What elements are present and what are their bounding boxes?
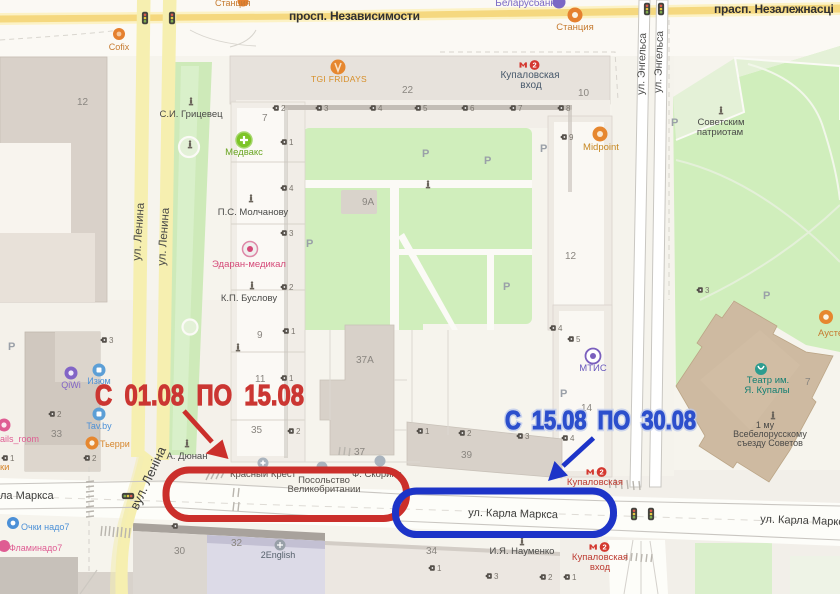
svg-text:P: P	[503, 281, 510, 293]
svg-text:39: 39	[461, 450, 473, 461]
svg-text:33: 33	[51, 429, 63, 440]
svg-text:И.Я. Науменко: И.Я. Науменко	[490, 546, 555, 557]
svg-text:37: 37	[354, 447, 366, 458]
svg-text:35: 35	[251, 425, 263, 436]
svg-text:P: P	[306, 238, 313, 250]
svg-text:ла Маркса: ла Маркса	[0, 490, 55, 502]
svg-text:37А: 37А	[356, 355, 374, 366]
svg-text:А. Дюнан: А. Дюнан	[167, 451, 208, 462]
svg-text:30: 30	[174, 546, 186, 557]
svg-text:Великобритании: Великобритании	[287, 484, 360, 495]
svg-text:7: 7	[518, 104, 523, 113]
svg-text:Я. Купалы: Я. Купалы	[744, 385, 789, 396]
svg-text:ул. Карла Маркса: ул. Карла Маркса	[468, 507, 559, 521]
svg-text:3: 3	[109, 336, 114, 345]
svg-text:TGI FRIDAYS: TGI FRIDAYS	[311, 74, 367, 84]
svg-text:С.И. Грицевец: С.И. Грицевец	[159, 109, 223, 120]
svg-text:4: 4	[378, 104, 383, 113]
svg-text:Купаловская: Купаловская	[567, 477, 623, 488]
svg-text:ул. Энгельса: ул. Энгельса	[652, 30, 666, 93]
svg-text:22: 22	[402, 85, 414, 96]
svg-text:Тьерри: Тьерри	[100, 439, 130, 449]
svg-text:7: 7	[262, 113, 268, 124]
svg-text:3: 3	[289, 229, 294, 238]
svg-text:9: 9	[569, 133, 574, 142]
svg-text:1: 1	[291, 327, 296, 336]
svg-text:2: 2	[289, 283, 294, 292]
svg-text:вход: вход	[590, 562, 611, 573]
svg-text:1: 1	[10, 454, 15, 463]
svg-text:Эдаран-медикал: Эдаран-медикал	[212, 259, 286, 270]
svg-text:3: 3	[705, 286, 710, 295]
svg-text:10: 10	[578, 88, 590, 99]
svg-text:2: 2	[296, 427, 301, 436]
svg-text:Аустерия: Аустерия	[818, 328, 840, 339]
svg-text:P: P	[671, 117, 678, 129]
svg-text:3: 3	[494, 572, 499, 581]
svg-text:12: 12	[77, 97, 89, 108]
svg-text:12: 12	[565, 251, 577, 262]
svg-text:2English: 2English	[261, 550, 296, 560]
svg-text:Tav.by: Tav.by	[86, 421, 112, 431]
svg-text:QiWi: QiWi	[61, 380, 81, 390]
svg-text:P: P	[8, 341, 15, 353]
svg-text:П.С. Молчанову: П.С. Молчанову	[218, 207, 289, 218]
svg-text:Фламинадо7: Фламинадо7	[9, 543, 62, 553]
svg-text:Cofix: Cofix	[109, 42, 130, 52]
svg-text:4: 4	[558, 324, 563, 333]
svg-text:1: 1	[289, 138, 294, 147]
svg-text:9А: 9А	[362, 197, 375, 208]
svg-text:Очки надо7: Очки надо7	[21, 522, 69, 532]
svg-text:С 15.08 ПО 30.08: С 15.08 ПО 30.08	[505, 405, 696, 435]
svg-text:5: 5	[423, 104, 428, 113]
svg-text:4: 4	[289, 184, 294, 193]
svg-text:патриотам: патриотам	[697, 127, 743, 138]
svg-text:С 01.08 ПО 15.08: С 01.08 ПО 15.08	[95, 380, 304, 412]
svg-text:прасп. Незалежнасці: прасп. Незалежнасці	[714, 2, 834, 16]
svg-text:Беларусбанк: Беларусбанк	[495, 0, 555, 9]
svg-text:5: 5	[576, 335, 581, 344]
svg-text:МТИС: МТИС	[579, 363, 607, 374]
svg-text:1: 1	[572, 573, 577, 582]
svg-text:2: 2	[548, 573, 553, 582]
svg-text:просп. Независимости: просп. Независимости	[289, 9, 420, 23]
svg-text:2: 2	[57, 410, 62, 419]
svg-text:2: 2	[467, 429, 472, 438]
svg-text:P: P	[484, 155, 491, 167]
svg-text:ails_room: ails_room	[0, 434, 39, 444]
svg-text:P: P	[540, 143, 547, 155]
svg-text:ул. Энгельса: ул. Энгельса	[635, 32, 649, 95]
svg-text:Станция: Станция	[215, 0, 251, 8]
svg-text:ки: ки	[0, 462, 9, 473]
svg-text:P: P	[560, 388, 567, 400]
svg-text:4: 4	[570, 434, 575, 443]
svg-text:7: 7	[805, 377, 811, 388]
svg-text:Медвакс: Медвакс	[225, 147, 263, 158]
svg-text:Midpoint: Midpoint	[583, 142, 619, 153]
svg-text:К.П. Буслову: К.П. Буслову	[221, 293, 277, 304]
svg-text:3: 3	[324, 104, 329, 113]
svg-text:P: P	[422, 148, 429, 160]
svg-text:Станция: Станция	[556, 22, 594, 33]
svg-text:2: 2	[281, 104, 286, 113]
svg-text:съезду Советов: съезду Советов	[737, 438, 803, 448]
svg-text:6: 6	[470, 104, 475, 113]
svg-text:1: 1	[437, 564, 442, 573]
svg-text:P: P	[763, 290, 770, 302]
svg-text:32: 32	[231, 538, 243, 549]
svg-text:34: 34	[426, 546, 438, 557]
svg-text:2: 2	[92, 454, 97, 463]
svg-text:вход: вход	[520, 80, 542, 91]
svg-text:8: 8	[566, 104, 571, 113]
svg-text:1: 1	[425, 427, 430, 436]
svg-text:9: 9	[257, 330, 263, 341]
